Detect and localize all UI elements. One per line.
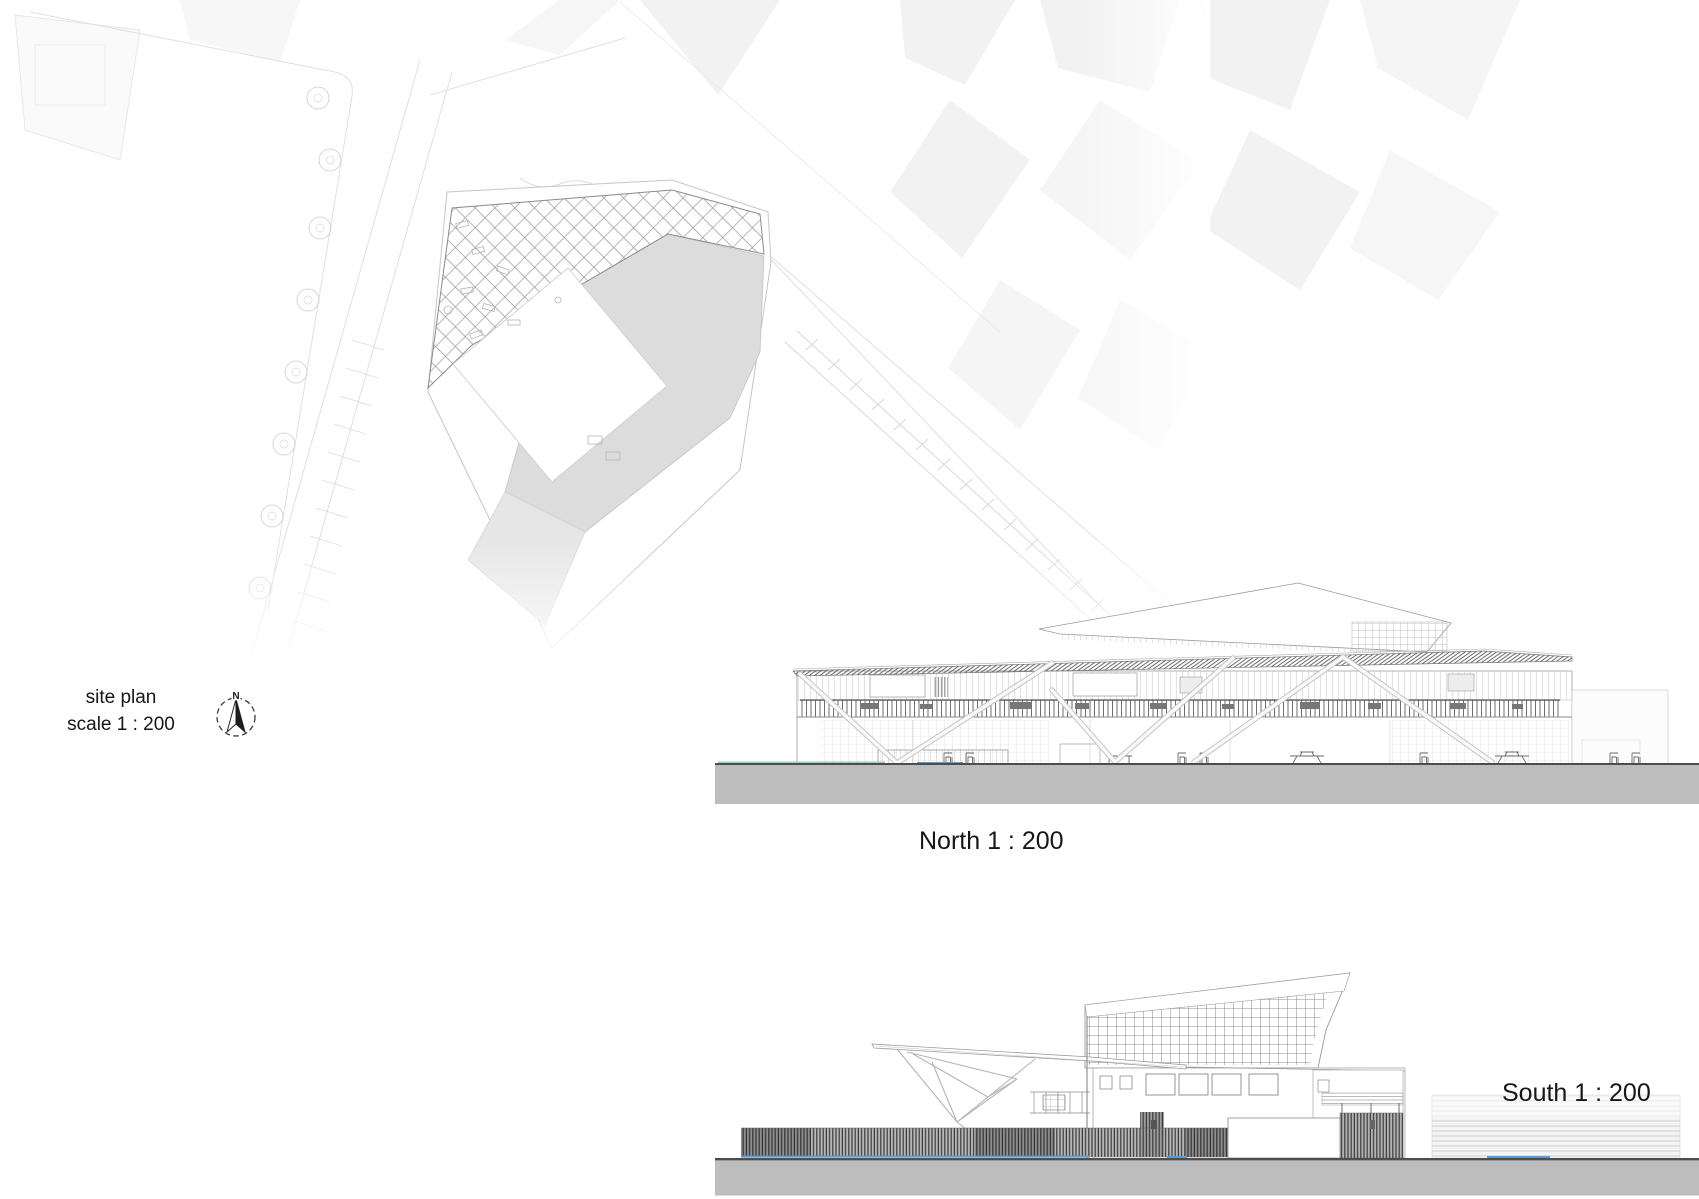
north-ground-band (715, 762, 1699, 805)
drawing-canvas (0, 0, 1699, 1199)
north-arrow-icon: N (209, 688, 263, 742)
site-plan-title: site plan (40, 684, 202, 711)
site-plan-scale: scale 1 : 200 (40, 711, 202, 738)
north-elevation-label: North 1 : 200 (919, 827, 1064, 856)
siteplan-fade-right (1080, 0, 1210, 670)
siteplan-fade-bottom (0, 540, 1180, 670)
site-plan-drawing (0, 0, 1520, 670)
south-ground-band (715, 1156, 1699, 1196)
compass-n-label: N (232, 691, 239, 702)
south-sail (1085, 973, 1350, 1068)
north-annex (1572, 690, 1668, 764)
site-plan-label: site plan scale 1 : 200 (40, 684, 202, 738)
presentation-sheet: site plan scale 1 : 200 North 1 : 200 So… (0, 0, 1699, 1199)
south-white-box (1228, 1118, 1340, 1158)
south-elevation-label: South 1 : 200 (1502, 1079, 1651, 1108)
tree-symbols (249, 87, 341, 599)
north-ground-floor (820, 720, 1640, 765)
south-balcony-detail (1030, 1092, 1090, 1113)
